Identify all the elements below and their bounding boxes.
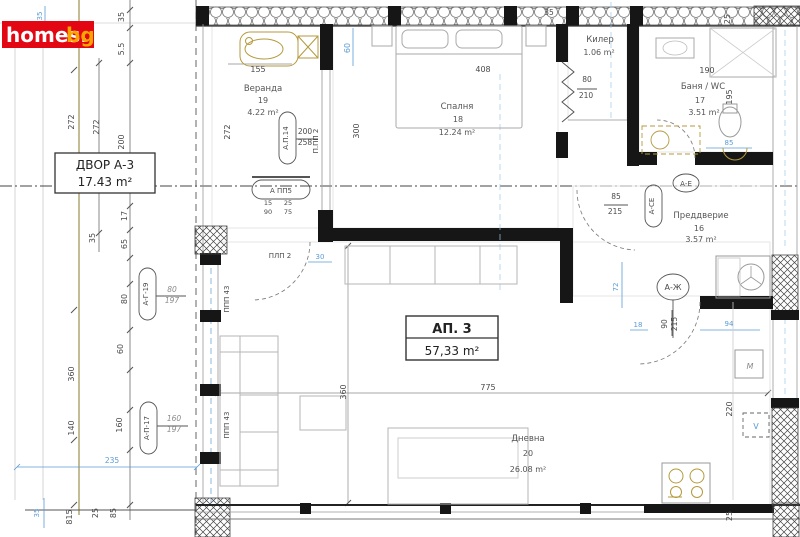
veranda-fixtures xyxy=(240,32,318,66)
room-bedroom-area: 12.24 m² xyxy=(439,128,475,137)
dimension-label: 25 xyxy=(723,14,732,24)
dimension-label: 35 xyxy=(88,233,97,243)
dimension-label: 25 xyxy=(284,199,292,207)
coffee-table xyxy=(300,396,346,430)
door-tag: ПЛП 2 xyxy=(269,252,291,260)
window-tag: ППП 43 xyxy=(223,286,231,313)
dimension-label: 25 xyxy=(725,511,734,521)
dimension-label: 775 xyxy=(480,383,495,392)
dimension-label: 155 xyxy=(250,65,265,74)
dimension-label: 35 xyxy=(36,12,44,21)
dimension-label: 30 xyxy=(316,253,325,261)
plot-label-area: 17.43 m² xyxy=(78,175,133,189)
dimension-label: 360 xyxy=(67,366,76,381)
apartment-label-title: АП. 3 xyxy=(432,322,471,337)
window-tag: П.ПП 2 xyxy=(312,129,320,154)
appliance-label: V xyxy=(753,422,759,431)
dimension-label: 72 xyxy=(612,283,620,292)
room-vestibule-number: 16 xyxy=(694,224,704,233)
axis-tag: А-Е xyxy=(680,180,692,188)
dimension-label: 210 xyxy=(579,91,594,100)
dimension-label: 272 xyxy=(92,119,101,134)
room-veranda-area: 4.22 m² xyxy=(247,108,278,117)
room-bathroom-number: 17 xyxy=(695,96,705,105)
plot-label-box: ДВОР А-3 17.43 m² xyxy=(55,153,155,193)
dimension-label: 220 xyxy=(725,401,734,416)
dimension-label: 85 xyxy=(725,139,734,147)
dimension-label: 25 xyxy=(91,508,100,518)
toilet xyxy=(719,107,741,137)
room-living-area: 26.08 m² xyxy=(510,465,546,474)
dimension-label: 197 xyxy=(167,425,182,434)
window-tag: А.П.14 xyxy=(282,126,290,150)
dimension-label: 200 xyxy=(298,127,313,136)
dimension-label: 272 xyxy=(67,114,76,129)
room-closet-area: 1.06 m² xyxy=(583,48,614,57)
counter xyxy=(716,256,770,298)
room-bathroom-name: Баня / WC xyxy=(681,82,725,92)
dimension-label: 360 xyxy=(339,384,348,399)
dimension-label: 235 xyxy=(105,456,120,465)
nightstand xyxy=(372,26,392,46)
window-tag: А-П-17 xyxy=(143,416,151,440)
nightstand xyxy=(526,26,546,46)
apartment-label-area: 57,33 m² xyxy=(425,344,480,358)
homes-bg-logo: homes. bg xyxy=(2,21,95,48)
room-living-name: Дневна xyxy=(511,434,544,444)
bedroom-furniture xyxy=(372,26,546,128)
tag-shapes xyxy=(139,89,699,454)
dimension-label: 94 xyxy=(725,320,734,328)
dimension-label: 197 xyxy=(165,296,180,305)
dimension-label: 90 xyxy=(660,319,669,329)
top-wall xyxy=(196,6,800,26)
room-vestibule-name: Преддверие xyxy=(673,211,728,221)
dimension-label: 215 xyxy=(608,207,623,216)
floorplan-image: Веранда 19 4.22 m² Спалня 18 12.24 m² Ки… xyxy=(0,0,800,537)
dimension-label: 160 xyxy=(115,417,124,432)
dimension-label: 5.5 xyxy=(117,43,126,56)
interior-walls xyxy=(318,2,773,309)
blue-dimensions xyxy=(14,6,760,528)
dimension-label: 80 xyxy=(120,294,129,304)
dimension-label: 85 xyxy=(109,508,118,518)
tv-unit xyxy=(388,428,528,504)
dimension-label: 85 xyxy=(611,192,621,201)
dimension-label: 17 xyxy=(120,211,129,221)
dimension-label: 35 xyxy=(117,12,126,22)
room-closet-name: Килер xyxy=(586,35,614,45)
dimension-label: 80 xyxy=(582,75,592,84)
dimension-label: 35 xyxy=(544,8,554,17)
floorplan-svg: Веранда 19 4.22 m² Спалня 18 12.24 m² Ки… xyxy=(0,0,800,537)
room-vestibule-area: 3.57 m² xyxy=(685,235,716,244)
right-wall xyxy=(771,26,799,505)
dimension-label: 195 xyxy=(725,89,734,104)
apartment-label-box: АП. 3 57,33 m² xyxy=(406,316,498,360)
dimension-label: 18 xyxy=(634,321,643,329)
dimension-label: 215 xyxy=(670,317,679,332)
window-tag: А-Г-19 xyxy=(142,282,150,305)
dimension-label: 60 xyxy=(116,344,125,354)
dimension-label: 815 xyxy=(65,509,74,524)
living-furniture xyxy=(220,246,528,504)
room-veranda-number: 19 xyxy=(258,96,268,105)
dimension-label: 258 xyxy=(298,138,313,147)
dimension-label: 65 xyxy=(120,239,129,249)
dimension-label: 15 xyxy=(264,199,272,207)
dimension-label: 300 xyxy=(352,123,361,138)
dimension-label: 140 xyxy=(67,420,76,435)
plot-label-title: ДВОР А-3 xyxy=(76,158,134,172)
dimension-label: 75 xyxy=(284,208,292,216)
dimension-label: 90 xyxy=(264,208,272,216)
room-bedroom-number: 18 xyxy=(453,115,463,124)
dimension-label: 408 xyxy=(475,65,490,74)
sideboard xyxy=(345,246,517,284)
room-bathroom-area: 3.51 m² xyxy=(688,108,719,117)
bathroom-fixtures xyxy=(642,28,776,160)
appliance-label: М xyxy=(747,362,754,371)
left-window-wall xyxy=(195,24,230,537)
sofa xyxy=(220,336,278,486)
door-tag: А-Ж xyxy=(665,283,682,292)
floor-outlines xyxy=(212,26,773,505)
dimension-label: 200 xyxy=(117,134,126,149)
window-tag: ППП 43 xyxy=(223,412,231,439)
kitchen-fixtures xyxy=(662,256,770,503)
window-tag: А ПП5 xyxy=(270,187,292,195)
bottom-wall xyxy=(196,503,800,537)
dimension-label: 35 xyxy=(33,509,41,518)
room-living-number: 20 xyxy=(523,449,533,458)
dimension-label: 190 xyxy=(699,66,714,75)
room-veranda-name: Веранда xyxy=(244,84,282,94)
dimension-label: 60 xyxy=(343,43,352,53)
logo-text-suffix: bg xyxy=(66,23,95,47)
door-tag: А-СЕ xyxy=(648,198,656,215)
dimension-label: 160 xyxy=(167,414,182,423)
dimension-label: 272 xyxy=(223,124,232,139)
dimension-label: 80 xyxy=(167,285,177,294)
bed xyxy=(396,26,522,128)
room-bedroom-name: Спалня xyxy=(441,102,474,112)
